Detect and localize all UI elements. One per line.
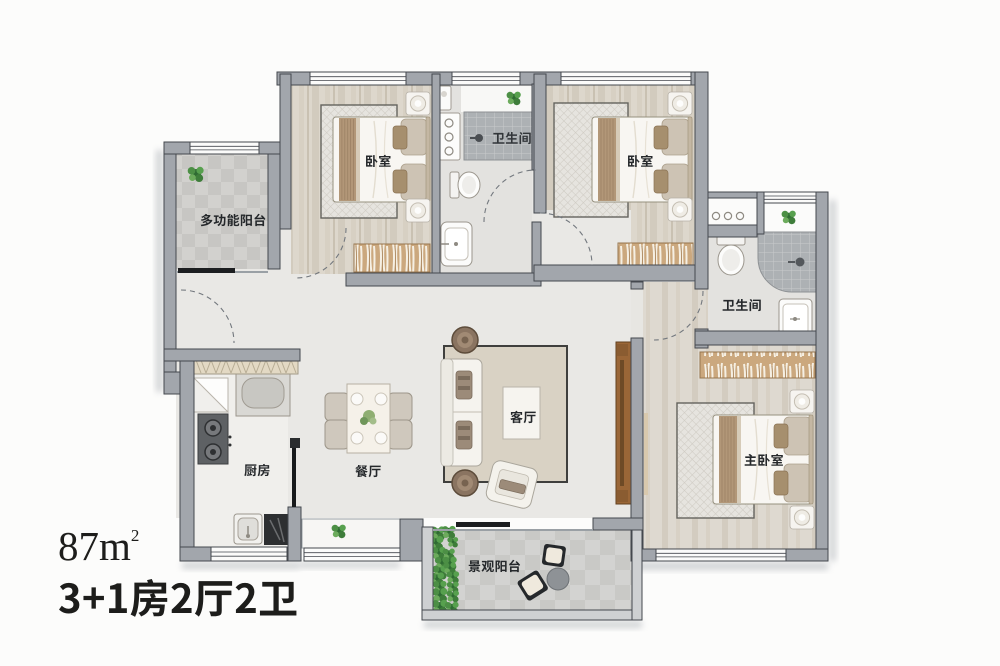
- svg-text:87m2: 87m2: [58, 523, 139, 569]
